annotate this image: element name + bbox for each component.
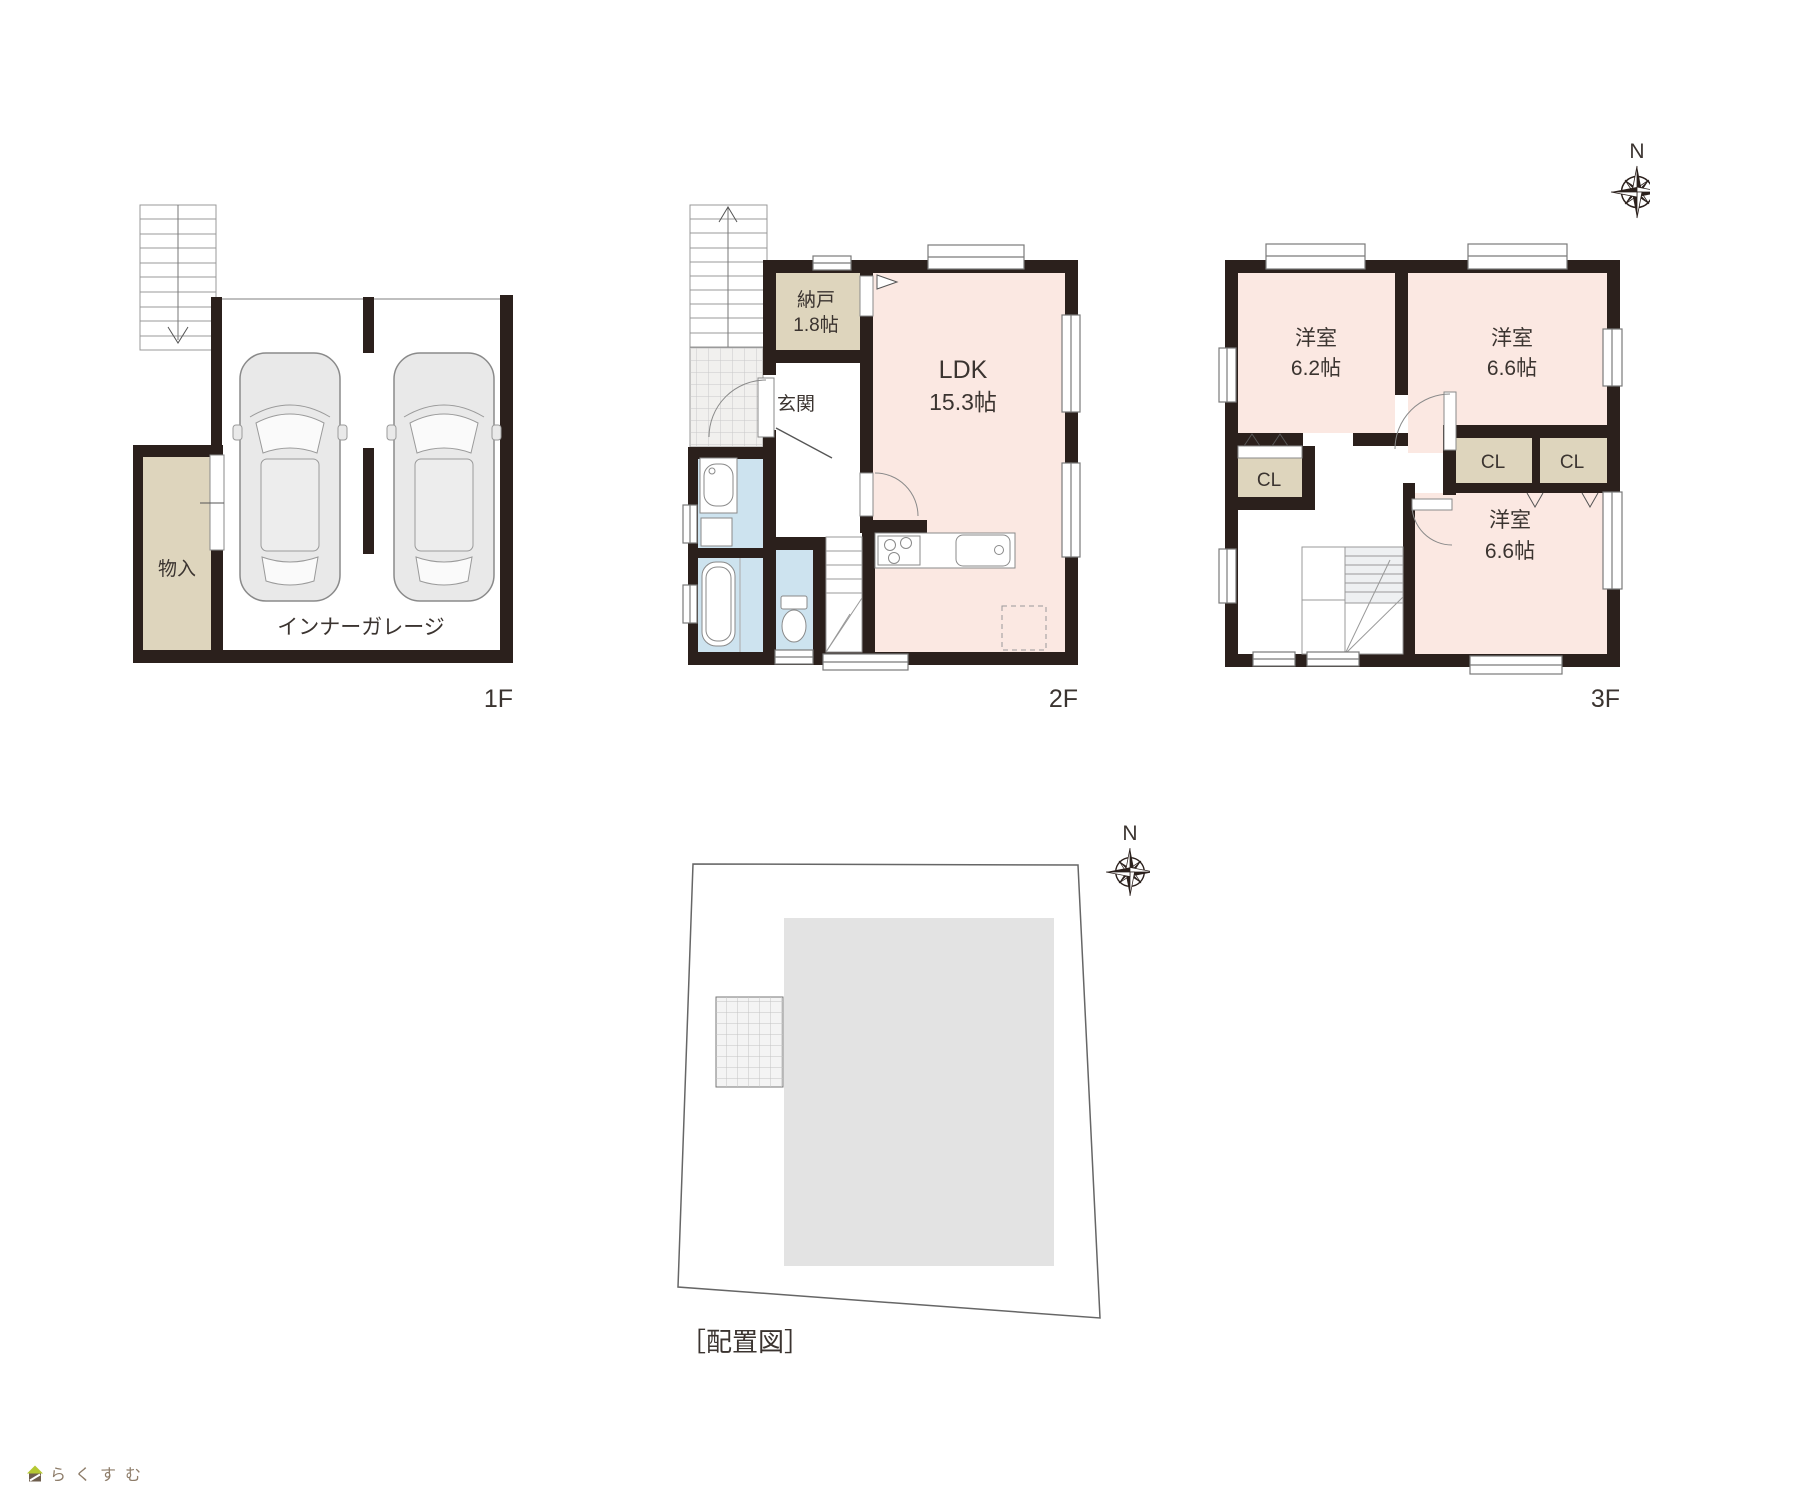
floor-plan-1f: 物入 インナーガレージ 1F <box>100 130 530 720</box>
kitchen-counter <box>875 533 1015 568</box>
floor-plan-2f: 納戸 1.8帖 玄関 LDK 15.3帖 2F <box>580 130 1100 720</box>
genkan-label: 玄関 <box>777 393 815 415</box>
floor-label-3f: 3F <box>1591 685 1620 713</box>
ldk-room <box>873 273 1065 652</box>
compass-n-label: N <box>1629 140 1644 163</box>
closet-middle-label: CL <box>1257 470 1281 491</box>
ldk-label: LDK <box>939 356 988 384</box>
washing-machine-icon <box>701 518 732 546</box>
nando-door <box>860 276 873 316</box>
nando-size-label: 1.8帖 <box>793 314 838 336</box>
staircase-1f <box>140 205 216 350</box>
site-plan-label: ［配置図］ <box>680 1327 810 1357</box>
closet-left-label: CL <box>1481 452 1505 473</box>
staircase-2f-interior <box>826 537 862 652</box>
building-footprint <box>784 918 1054 1266</box>
genkan-step-line <box>776 428 832 458</box>
garage-label: インナーガレージ <box>277 616 445 639</box>
floor-label-2f: 2F <box>1049 685 1078 713</box>
sink-icon <box>956 535 1010 566</box>
bedroom-nw-label: 洋室 <box>1295 327 1337 350</box>
compass-n-label: N <box>1122 822 1137 845</box>
site-plan: ［配置図］ N <box>650 790 1150 1370</box>
closet-right-label: CL <box>1560 452 1584 473</box>
staircase-3f <box>1302 547 1403 654</box>
storage-label-1f: 物入 <box>158 558 196 580</box>
floor-label-1f: 1F <box>484 685 513 713</box>
toilet-icon <box>781 596 807 642</box>
bedroom-se-size: 6.6帖 <box>1485 540 1535 563</box>
ldk-size-label: 15.3帖 <box>929 389 997 415</box>
vanity-sink-icon <box>700 458 737 513</box>
nando-room <box>776 273 860 350</box>
bedroom-nw-size: 6.2帖 <box>1291 357 1341 380</box>
floor-plan-3f: 洋室 6.2帖 洋室 6.6帖 洋室 6.6帖 CL CL CL 3F N <box>1215 130 1650 720</box>
floorplan-page: 物入 インナーガレージ 1F <box>0 0 1800 1487</box>
stove-icon <box>878 536 920 565</box>
brand-logo: らくすむ <box>26 1461 150 1485</box>
bedroom-ne-label: 洋室 <box>1491 327 1533 350</box>
car-icon <box>233 353 347 601</box>
bedroom-se-label: 洋室 <box>1489 509 1531 532</box>
compass-icon: N <box>1106 822 1150 896</box>
approach-tiles <box>716 997 783 1087</box>
bedroom-ne-extension <box>1408 425 1444 453</box>
house-logo-icon <box>26 1465 44 1482</box>
entrance-porch <box>690 348 763 447</box>
car-icon <box>387 353 501 601</box>
staircase-2f <box>690 205 767 347</box>
bedroom-nw <box>1238 273 1395 433</box>
nando-label: 納戸 <box>797 289 835 311</box>
compass-icon: N <box>1611 140 1650 218</box>
brand-logo-text: らくすむ <box>50 1461 150 1485</box>
bedroom-ne-size: 6.6帖 <box>1487 357 1537 380</box>
